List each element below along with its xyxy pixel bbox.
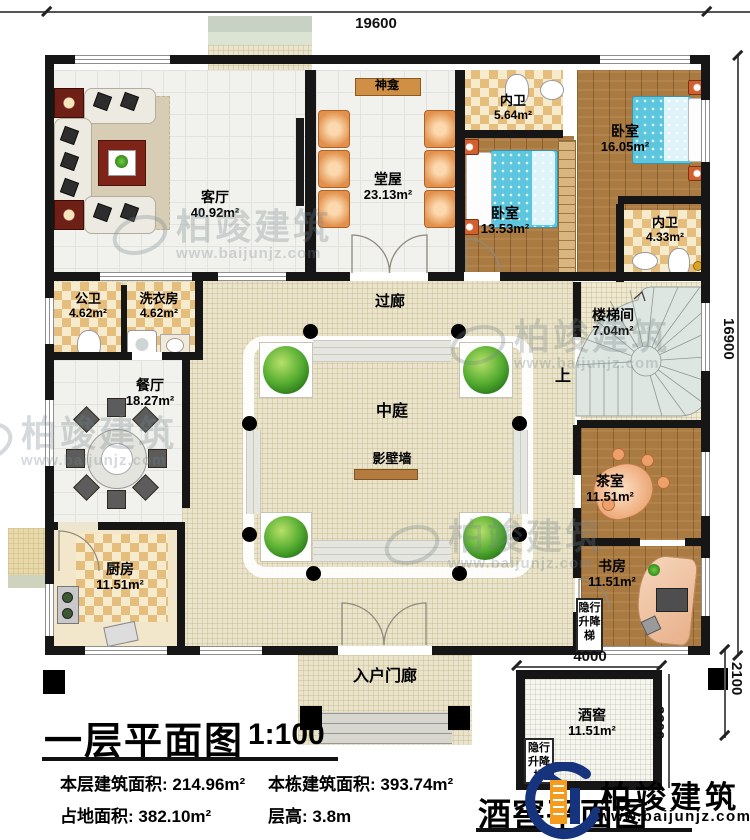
walkway-strip-left bbox=[246, 430, 261, 514]
section-marker bbox=[43, 670, 65, 694]
hall-double-door bbox=[351, 233, 428, 274]
brand-logo-icon bbox=[516, 762, 600, 840]
burner-icon bbox=[62, 592, 73, 603]
dining-chair bbox=[148, 449, 167, 468]
brand-url: www.baijunjz.com bbox=[598, 808, 750, 825]
tea-cushion bbox=[641, 454, 654, 467]
entry-porch-label: 入户门廊 bbox=[325, 668, 445, 686]
planter-top-left bbox=[259, 342, 313, 398]
column-dot bbox=[303, 324, 318, 339]
bedroom-door bbox=[465, 237, 501, 273]
stat-building-area: 本栋建筑面积: 393.74m² bbox=[268, 770, 453, 795]
column-dot bbox=[512, 527, 527, 542]
wall-stair-tea bbox=[577, 420, 709, 428]
tv-cabinet bbox=[296, 118, 304, 206]
window bbox=[85, 646, 167, 655]
corridor-label: 过廊 bbox=[350, 294, 430, 311]
window bbox=[600, 55, 690, 64]
stat-value: 382.10m² bbox=[138, 807, 211, 826]
column-dot bbox=[306, 566, 321, 581]
screen-wall-label: 影壁墙 bbox=[347, 452, 437, 467]
watermark-swoosh-icon bbox=[0, 416, 15, 468]
side-table-lamp bbox=[54, 200, 84, 230]
window bbox=[45, 400, 54, 466]
wall-tea-left-a bbox=[573, 425, 581, 475]
entry-double-door bbox=[341, 601, 427, 646]
laundry-label: 洗衣房 4.62m² bbox=[122, 292, 196, 320]
planter-bottom-left bbox=[260, 512, 312, 562]
stat-label: 层高: bbox=[268, 807, 308, 826]
tree-icon bbox=[264, 516, 308, 558]
window bbox=[75, 55, 170, 64]
side-table-lamp bbox=[54, 88, 84, 118]
dim-line-offset bbox=[724, 650, 726, 738]
dim-cellar-width: 4000 bbox=[555, 648, 625, 665]
stat-value: 393.74m² bbox=[380, 775, 453, 794]
wall-ensuite-left bbox=[616, 204, 624, 282]
walkway-strip-top bbox=[313, 340, 451, 362]
dim-total-height: 16900 bbox=[720, 318, 737, 360]
window bbox=[45, 584, 54, 636]
stat-value: 3.8m bbox=[312, 807, 351, 826]
stat-label: 本栋建筑面积: bbox=[268, 775, 376, 794]
monitor-icon bbox=[656, 588, 688, 612]
hall-label: 堂屋 23.13m² bbox=[338, 172, 438, 202]
window bbox=[701, 558, 710, 616]
dining-chair bbox=[107, 490, 126, 509]
title-underline bbox=[42, 757, 338, 761]
tea-cushion bbox=[612, 448, 625, 461]
wall-ensuite-bed bbox=[462, 130, 563, 138]
window bbox=[701, 303, 710, 371]
tree-icon bbox=[463, 516, 507, 560]
study-elevator-label: 隐行升降梯 bbox=[576, 598, 603, 652]
stat-land-area: 占地面积: 382.10m² bbox=[60, 802, 211, 827]
dining-chair bbox=[66, 449, 85, 468]
entry-door-gap bbox=[338, 646, 432, 655]
laundry-door-gap bbox=[132, 352, 162, 360]
dim-line-cellar-right bbox=[668, 674, 670, 788]
screen-wall-bar bbox=[354, 469, 418, 480]
stairs-up-label: 上 bbox=[550, 368, 576, 386]
tea-cushion bbox=[657, 476, 670, 489]
top-porch-band bbox=[208, 16, 312, 32]
sink-icon bbox=[632, 252, 658, 270]
wall-living-hall bbox=[305, 70, 316, 276]
wall-hall-bedrooms bbox=[455, 70, 465, 276]
dim-cellar-offset: 2100 bbox=[728, 662, 745, 695]
public-bath-label: 公卫 4.62m² bbox=[53, 292, 123, 320]
study-label: 书房 11.51m² bbox=[564, 559, 660, 589]
window bbox=[200, 646, 262, 655]
dim-cellar-depth: 3300 bbox=[650, 706, 667, 739]
dining-label: 餐厅 18.27m² bbox=[100, 378, 200, 408]
plan-scale: 1:100 bbox=[248, 718, 325, 752]
bedroom-door-gap bbox=[464, 272, 500, 281]
stat-label: 本层建筑面积: bbox=[60, 775, 168, 794]
stairwell-label: 楼梯间 7.04m² bbox=[565, 308, 661, 338]
sink-icon bbox=[166, 338, 184, 353]
floor-plan-sheet: 隐行升降梯 客厅 40.92m² 堂屋 23.13m² 神龛 内卫 5.64m²… bbox=[0, 0, 750, 840]
column-dot bbox=[242, 527, 257, 542]
bedroom-small-label: 卧室 13.53m² bbox=[455, 206, 555, 236]
wine-cellar-label: 酒窖 11.51m² bbox=[540, 708, 644, 738]
hall-chair bbox=[424, 110, 456, 148]
walkway-strip-bottom bbox=[313, 540, 451, 562]
column-dot bbox=[452, 566, 467, 581]
stat-floor-height: 层高: 3.8m bbox=[268, 802, 351, 827]
hall-chair bbox=[318, 110, 350, 148]
burner-icon bbox=[62, 608, 73, 619]
wall-laundry-right bbox=[195, 272, 203, 360]
window bbox=[701, 452, 710, 516]
tree-icon bbox=[263, 346, 309, 394]
column-dot bbox=[451, 324, 466, 339]
planter-bottom-right bbox=[459, 512, 511, 564]
window bbox=[701, 100, 710, 162]
stat-label: 占地面积: bbox=[60, 807, 134, 826]
dim-line-top bbox=[0, 11, 750, 13]
window bbox=[100, 272, 192, 281]
stat-floor-area: 本层建筑面积: 214.96m² bbox=[60, 770, 245, 795]
wardrobe bbox=[558, 140, 576, 278]
spiral-staircase bbox=[574, 285, 709, 418]
dining-table-top bbox=[101, 443, 133, 475]
porch-post-right bbox=[448, 706, 470, 730]
walkway-strip-right bbox=[513, 430, 528, 514]
wall-bed-ensuite bbox=[618, 196, 709, 204]
top-porch-band2 bbox=[208, 32, 312, 45]
wall-tea-study-b bbox=[685, 538, 709, 546]
tree-icon bbox=[463, 346, 509, 394]
wall-tea-study-a bbox=[577, 538, 640, 546]
column-dot bbox=[242, 416, 257, 431]
dim-total-width: 19600 bbox=[338, 15, 414, 32]
dim-line-right bbox=[737, 56, 739, 656]
entry-steps bbox=[318, 712, 452, 744]
shrine-label: 神龛 bbox=[355, 79, 419, 92]
living-room-label: 客厅 40.92m² bbox=[155, 190, 275, 220]
bedroom-large-label: 卧室 16.05m² bbox=[575, 124, 675, 154]
stat-value: 214.96m² bbox=[172, 775, 245, 794]
ensuite-right-label: 内卫 4.33m² bbox=[625, 216, 705, 244]
kitchen-label: 厨房 11.51m² bbox=[70, 562, 170, 592]
column-dot bbox=[512, 416, 527, 431]
table-plant-icon bbox=[115, 155, 128, 168]
planter-top-right bbox=[459, 342, 513, 398]
window bbox=[218, 272, 286, 281]
dim-line-cellar-top bbox=[516, 666, 662, 668]
wall-bath-bottom bbox=[45, 352, 195, 360]
ensuite-top-label: 内卫 5.64m² bbox=[470, 94, 556, 122]
wall-kitchen-right bbox=[177, 522, 185, 655]
tea-room-label: 茶室 11.51m² bbox=[562, 474, 658, 504]
atrium-label: 中庭 bbox=[352, 403, 432, 421]
